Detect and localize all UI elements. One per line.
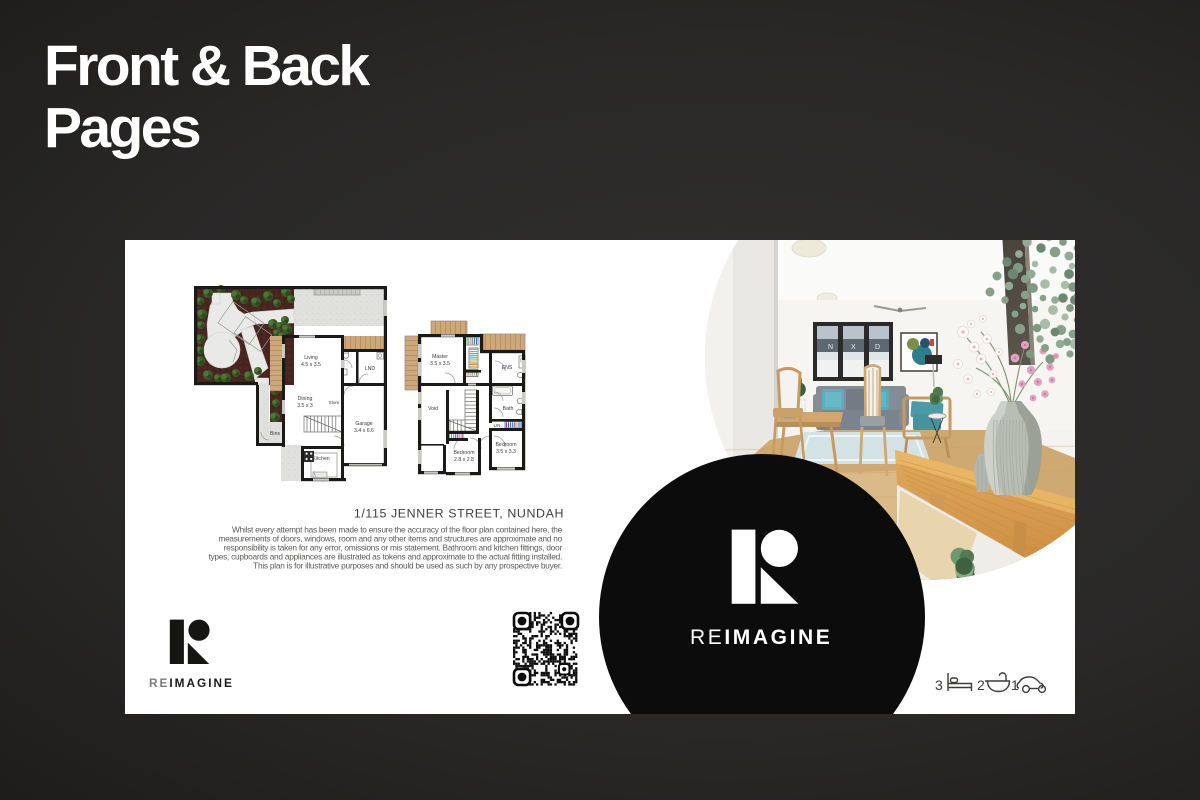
svg-text:Bedroom: Bedroom: [453, 450, 474, 456]
svg-text:3.5 x 3.5: 3.5 x 3.5: [430, 361, 450, 367]
svg-text:Garage: Garage: [355, 421, 372, 427]
svg-text:3.5 x 3.3: 3.5 x 3.3: [496, 449, 516, 455]
svg-text:X: X: [851, 344, 856, 351]
svg-text:1/115 JENNER STREET, NUNDAH: 1/115 JENNER STREET, NUNDAH: [354, 507, 564, 521]
svg-text:LIN: LIN: [494, 423, 501, 428]
svg-text:N: N: [828, 344, 833, 351]
svg-text:4.5 x 3.5: 4.5 x 3.5: [301, 362, 321, 368]
svg-text:2.8 x 2.8: 2.8 x 2.8: [454, 457, 474, 463]
svg-text:REIMAGINE: REIMAGINE: [149, 676, 234, 690]
svg-text:3.5 x 3: 3.5 x 3: [297, 403, 313, 409]
svg-text:Master: Master: [432, 354, 448, 360]
svg-text:LND: LND: [365, 366, 376, 372]
svg-text:Bedroom: Bedroom: [495, 442, 516, 448]
svg-text:Store: Store: [329, 400, 340, 405]
svg-text:ENS: ENS: [502, 365, 513, 371]
svg-text:Bath: Bath: [503, 406, 514, 412]
svg-text:3: 3: [935, 677, 943, 693]
svg-text:Bins: Bins: [270, 431, 280, 437]
svg-text:Void: Void: [428, 406, 438, 412]
svg-text:2: 2: [977, 677, 985, 693]
svg-text:3.4 x 6.6: 3.4 x 6.6: [354, 428, 374, 434]
svg-text:Dining: Dining: [298, 396, 313, 402]
svg-text:REIMAGINE: REIMAGINE: [690, 626, 832, 649]
svg-text:Kitchen: Kitchen: [312, 456, 329, 462]
svg-text:D: D: [875, 344, 880, 351]
svg-text:Living: Living: [304, 355, 318, 361]
svg-text:This plan is for illustrative: This plan is for illustrative purposes a…: [253, 561, 562, 571]
svg-text:1: 1: [1011, 677, 1019, 693]
